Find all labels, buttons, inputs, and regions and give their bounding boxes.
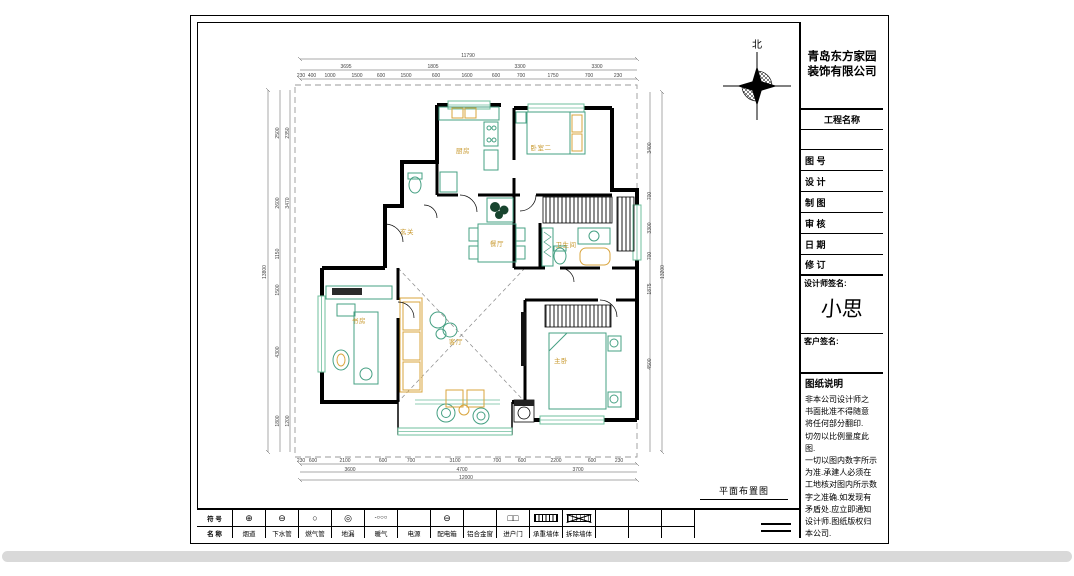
- designer-signature-label: 设计师签名:: [804, 278, 880, 289]
- field-review: 审 核: [801, 213, 883, 234]
- legend-symbol: ◎: [332, 510, 364, 527]
- north-label: 北: [752, 39, 762, 51]
- room-label: 书房: [352, 316, 366, 325]
- legend-symbol: [530, 510, 562, 527]
- dimension-label: 230: [297, 73, 306, 79]
- project-name-value: [801, 130, 883, 150]
- legend-item: [662, 510, 695, 538]
- dimension-label: 1600: [461, 73, 472, 79]
- dimension-label: 3600: [344, 467, 355, 473]
- dimension-label: 600: [309, 458, 318, 464]
- legend-name: 地漏: [332, 527, 364, 538]
- dimension-label: 1000: [324, 73, 335, 79]
- dimension-label: 1805: [427, 64, 438, 70]
- legend-items: ⊕烟道⊖下水管○燃气管◎地漏-○○○暖气电源⊖配电箱铝合金窗□□进户门承重墙体拆…: [233, 510, 695, 538]
- dimension-label: 1500: [275, 284, 281, 295]
- dimension-label: 3700: [572, 467, 583, 473]
- dimension-label: 600: [377, 73, 386, 79]
- legend-symbol-header: 符 号: [197, 510, 232, 527]
- legend-symbol: □□: [497, 510, 529, 527]
- room-label: 主卧: [554, 356, 568, 365]
- legend-name: 铝合金窗: [464, 527, 496, 538]
- legend-item: -○○○暖气: [365, 510, 398, 538]
- legend-symbol: ○: [299, 510, 331, 527]
- legend-item: ○燃气管: [299, 510, 332, 538]
- horizontal-scrollbar[interactable]: [2, 551, 1072, 562]
- dimension-label: 2200: [550, 458, 561, 464]
- legend-item: 电源: [398, 510, 431, 538]
- legend-name: [596, 527, 628, 538]
- dimension-label: 13200: [660, 265, 666, 279]
- dimension-label: 700: [517, 73, 526, 79]
- field-design: 设 计: [801, 171, 883, 192]
- legend-name: 进户门: [497, 527, 529, 538]
- dimension-label: 11790: [461, 53, 475, 59]
- legend-symbol: -○○○: [365, 510, 397, 527]
- field-revision: 修 订: [801, 255, 883, 276]
- dimension-label: 600: [588, 458, 597, 464]
- plan-title: 平面布置图: [700, 484, 788, 500]
- legend-item: ◎地漏: [332, 510, 365, 538]
- legend-name: 燃气管: [299, 527, 331, 538]
- north-compass-icon: 北: [723, 39, 791, 120]
- dimension-label: 2350: [285, 127, 291, 138]
- designer-signature-cell: 设计师签名: 小思: [801, 276, 883, 334]
- dimension-label: 3300: [591, 64, 602, 70]
- dimension-label: 1750: [547, 73, 558, 79]
- legend-name: 拆除墙体: [563, 527, 595, 538]
- legend-table: 符 号 名 称 ⊕烟道⊖下水管○燃气管◎地漏-○○○暖气电源⊖配电箱铝合金窗□□…: [197, 508, 799, 538]
- dimension-label: 400: [308, 73, 317, 79]
- legend-item: ⊖下水管: [266, 510, 299, 538]
- dimension-label: 1875: [647, 283, 653, 294]
- double-line-mark: [761, 523, 791, 532]
- legend-item: [596, 510, 629, 538]
- dimension-label: 700: [585, 73, 594, 79]
- title-block: 青岛东方家园 装饰有限公司 工程名称 图 号 设 计 制 图 审 核 日 期 修…: [799, 22, 883, 538]
- dimension-label: 1500: [400, 73, 411, 79]
- legend-symbol: [464, 510, 496, 527]
- dimension-label: 1200: [285, 415, 291, 426]
- dimension-label: 700: [647, 192, 653, 201]
- room-label: 卫生间: [556, 240, 577, 249]
- dimension-label: 600: [492, 73, 501, 79]
- room-label: 玄关: [400, 227, 414, 236]
- dimension-label: 3300: [514, 64, 525, 70]
- legend-name: 配电箱: [431, 527, 463, 538]
- dimension-label: 4500: [647, 358, 653, 369]
- dimension-label: 13800: [262, 265, 268, 279]
- legend-symbol: ⊖: [431, 510, 463, 527]
- dimension-label: 3400: [647, 142, 653, 153]
- legend-symbol: [596, 510, 628, 527]
- legend-name-header: 名 称: [197, 527, 232, 538]
- dimension-label: 12000: [459, 475, 473, 481]
- legend-item: □□进户门: [497, 510, 530, 538]
- room-label: 餐厅: [490, 239, 504, 248]
- legend-name: [629, 527, 661, 538]
- dimension-label: 2600: [275, 197, 281, 208]
- field-date: 日 期: [801, 234, 883, 255]
- legend-symbol: [629, 510, 661, 527]
- dimension-label: 600: [432, 73, 441, 79]
- legend-name: 电源: [398, 527, 430, 538]
- legend-symbol: [398, 510, 430, 527]
- field-drafting: 制 图: [801, 192, 883, 213]
- dimension-label: 1500: [351, 73, 362, 79]
- dimension-label: 1150: [275, 248, 281, 259]
- legend-name: 承重墙体: [530, 527, 562, 538]
- dimension-label: 4300: [275, 346, 281, 357]
- dimension-label: 230: [297, 458, 306, 464]
- dimension-label: 2500: [275, 127, 281, 138]
- ceiling-cross-lines: [398, 268, 525, 402]
- legend-header-column: 符 号 名 称: [197, 510, 233, 538]
- dimension-label: 600: [518, 458, 527, 464]
- furniture-green: [326, 107, 621, 424]
- legend-item: 承重墙体: [530, 510, 563, 538]
- legend-item: 铝合金窗: [464, 510, 497, 538]
- drawing-page: 北 厨房卧室二玄关餐厅卫生间书房客厅主卧11790369518053300330…: [0, 0, 1074, 576]
- dimension-label: 2100: [339, 458, 350, 464]
- room-label: 客厅: [449, 337, 463, 346]
- field-drawing-number: 图 号: [801, 150, 883, 171]
- dimension-label: 600: [379, 458, 388, 464]
- designer-signature: 小思: [803, 293, 881, 323]
- legend-name: 下水管: [266, 527, 298, 538]
- client-signature-cell: 客户签名:: [801, 334, 883, 374]
- legend-item: [629, 510, 662, 538]
- legend-filler: [695, 510, 799, 538]
- dimension-label: 700: [407, 458, 416, 464]
- walls: [322, 105, 637, 434]
- legend-symbol: [662, 510, 694, 527]
- room-label: 厨房: [456, 146, 470, 155]
- notes-text: 非本公司设计师之 书面批准不得随意 将任何部分翻印. 切勿以比例量度此图. 一切…: [801, 392, 883, 542]
- dimension-label: 700: [647, 252, 653, 261]
- dimension-label: 3695: [340, 64, 351, 70]
- dimension-label: 3470: [285, 197, 291, 208]
- floor-plan-drawing: 北 厨房卧室二玄关餐厅卫生间书房客厅主卧11790369518053300330…: [190, 15, 890, 545]
- dimension-label: 700: [493, 458, 502, 464]
- dimension-label: 230: [615, 458, 624, 464]
- legend-symbol: [563, 510, 595, 527]
- legend-name: [662, 527, 694, 538]
- dimension-label: 3100: [449, 458, 460, 464]
- notes-title: 图纸说明: [801, 374, 883, 392]
- dimension-label: 230: [614, 73, 623, 79]
- project-name-label: 工程名称: [801, 110, 883, 130]
- legend-symbol: ⊕: [233, 510, 265, 527]
- legend-item: ⊕烟道: [233, 510, 266, 538]
- legend-item: 拆除墙体: [563, 510, 596, 538]
- legend-symbol: ⊖: [266, 510, 298, 527]
- legend-name: 暖气: [365, 527, 397, 538]
- company-name: 青岛东方家园 装饰有限公司: [801, 22, 883, 110]
- legend-name: 烟道: [233, 527, 265, 538]
- legend-item: ⊖配电箱: [431, 510, 464, 538]
- dimension-label: 3300: [647, 222, 653, 233]
- dimension-label: 4700: [456, 467, 467, 473]
- room-label: 卧室二: [531, 143, 552, 152]
- dimension-label: 1800: [275, 415, 281, 426]
